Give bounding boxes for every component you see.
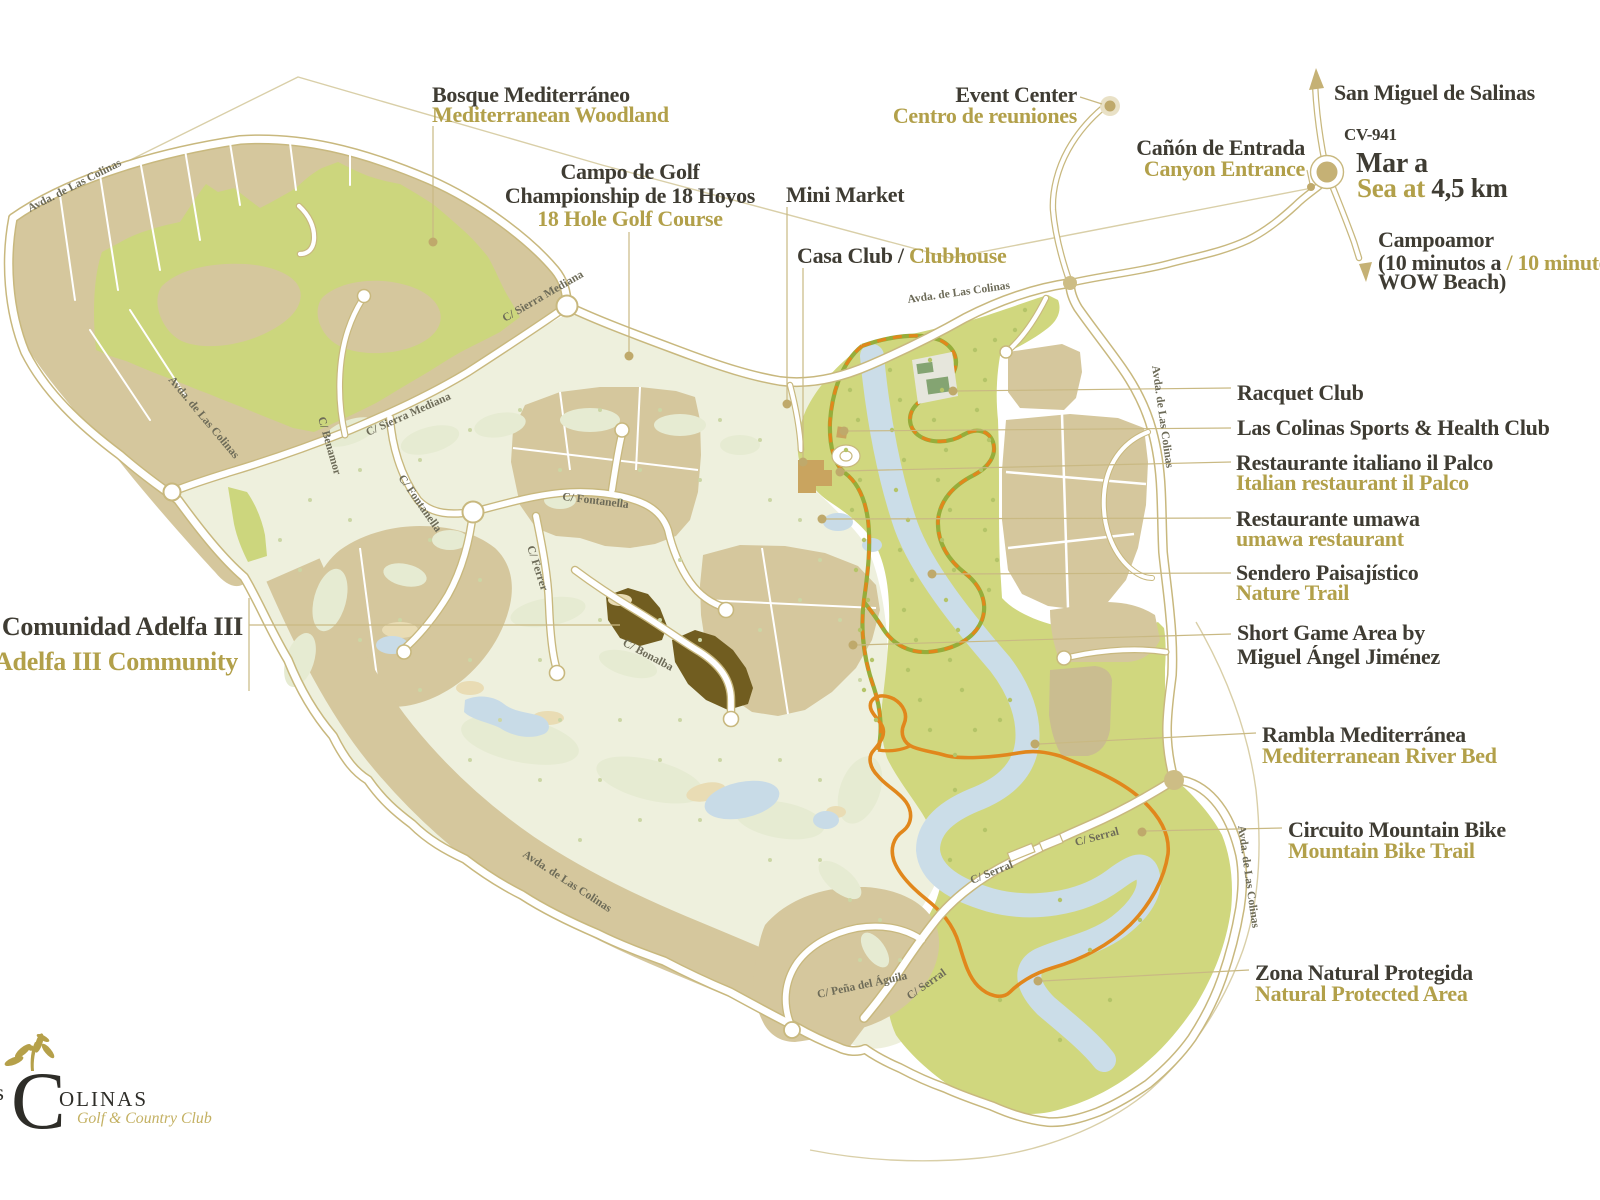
svg-text:Casa Club / Clubhouse: Casa Club / Clubhouse (797, 243, 1007, 268)
svg-text:Golf & Country Club: Golf & Country Club (77, 1110, 212, 1127)
svg-text:Sea at 4,5 km: Sea at 4,5 km (1357, 173, 1508, 203)
svg-text:Short Game Area by: Short Game Area by (1237, 620, 1425, 645)
svg-text:Mediterranean Woodland: Mediterranean Woodland (432, 102, 669, 127)
svg-text:WOW Beach): WOW Beach) (1378, 269, 1506, 294)
svg-text:Canyon Entrance: Canyon Entrance (1144, 156, 1306, 181)
svg-text:CV-941: CV-941 (1344, 125, 1397, 144)
svg-text:Comunidad Adelfa III: Comunidad Adelfa III (2, 612, 243, 641)
svg-text:s: s (0, 1080, 4, 1105)
svg-text:Natural Protected Area: Natural Protected Area (1255, 981, 1468, 1006)
svg-text:Adelfa III Community: Adelfa III Community (0, 647, 238, 676)
svg-text:Racquet Club: Racquet Club (1237, 380, 1364, 405)
svg-text:Championship de 18 Hoyos: Championship de 18 Hoyos (505, 183, 756, 208)
svg-text:Campo de Golf: Campo de Golf (560, 159, 700, 184)
svg-text:Mediterranean River Bed: Mediterranean River Bed (1262, 743, 1497, 768)
svg-text:Campoamor: Campoamor (1378, 227, 1494, 252)
svg-text:umawa restaurant: umawa restaurant (1236, 526, 1405, 551)
svg-text:C: C (11, 1055, 66, 1146)
svg-text:Centro de reuniones: Centro de reuniones (893, 103, 1078, 128)
svg-text:Nature Trail: Nature Trail (1236, 580, 1349, 605)
svg-text:Las Colinas Sports & Health Cl: Las Colinas Sports & Health Club (1237, 415, 1550, 440)
svg-text:Miguel Ángel Jiménez: Miguel Ángel Jiménez (1237, 644, 1440, 669)
svg-text:Mountain Bike Trail: Mountain Bike Trail (1288, 838, 1475, 863)
svg-text:Mini Market: Mini Market (786, 182, 905, 207)
svg-text:18 Hole Golf Course: 18 Hole Golf Course (537, 206, 723, 231)
svg-text:OLINAS: OLINAS (59, 1087, 148, 1111)
svg-text:Italian restaurant il Palco: Italian restaurant il Palco (1236, 470, 1469, 495)
svg-text:San Miguel de Salinas: San Miguel de Salinas (1334, 80, 1536, 105)
